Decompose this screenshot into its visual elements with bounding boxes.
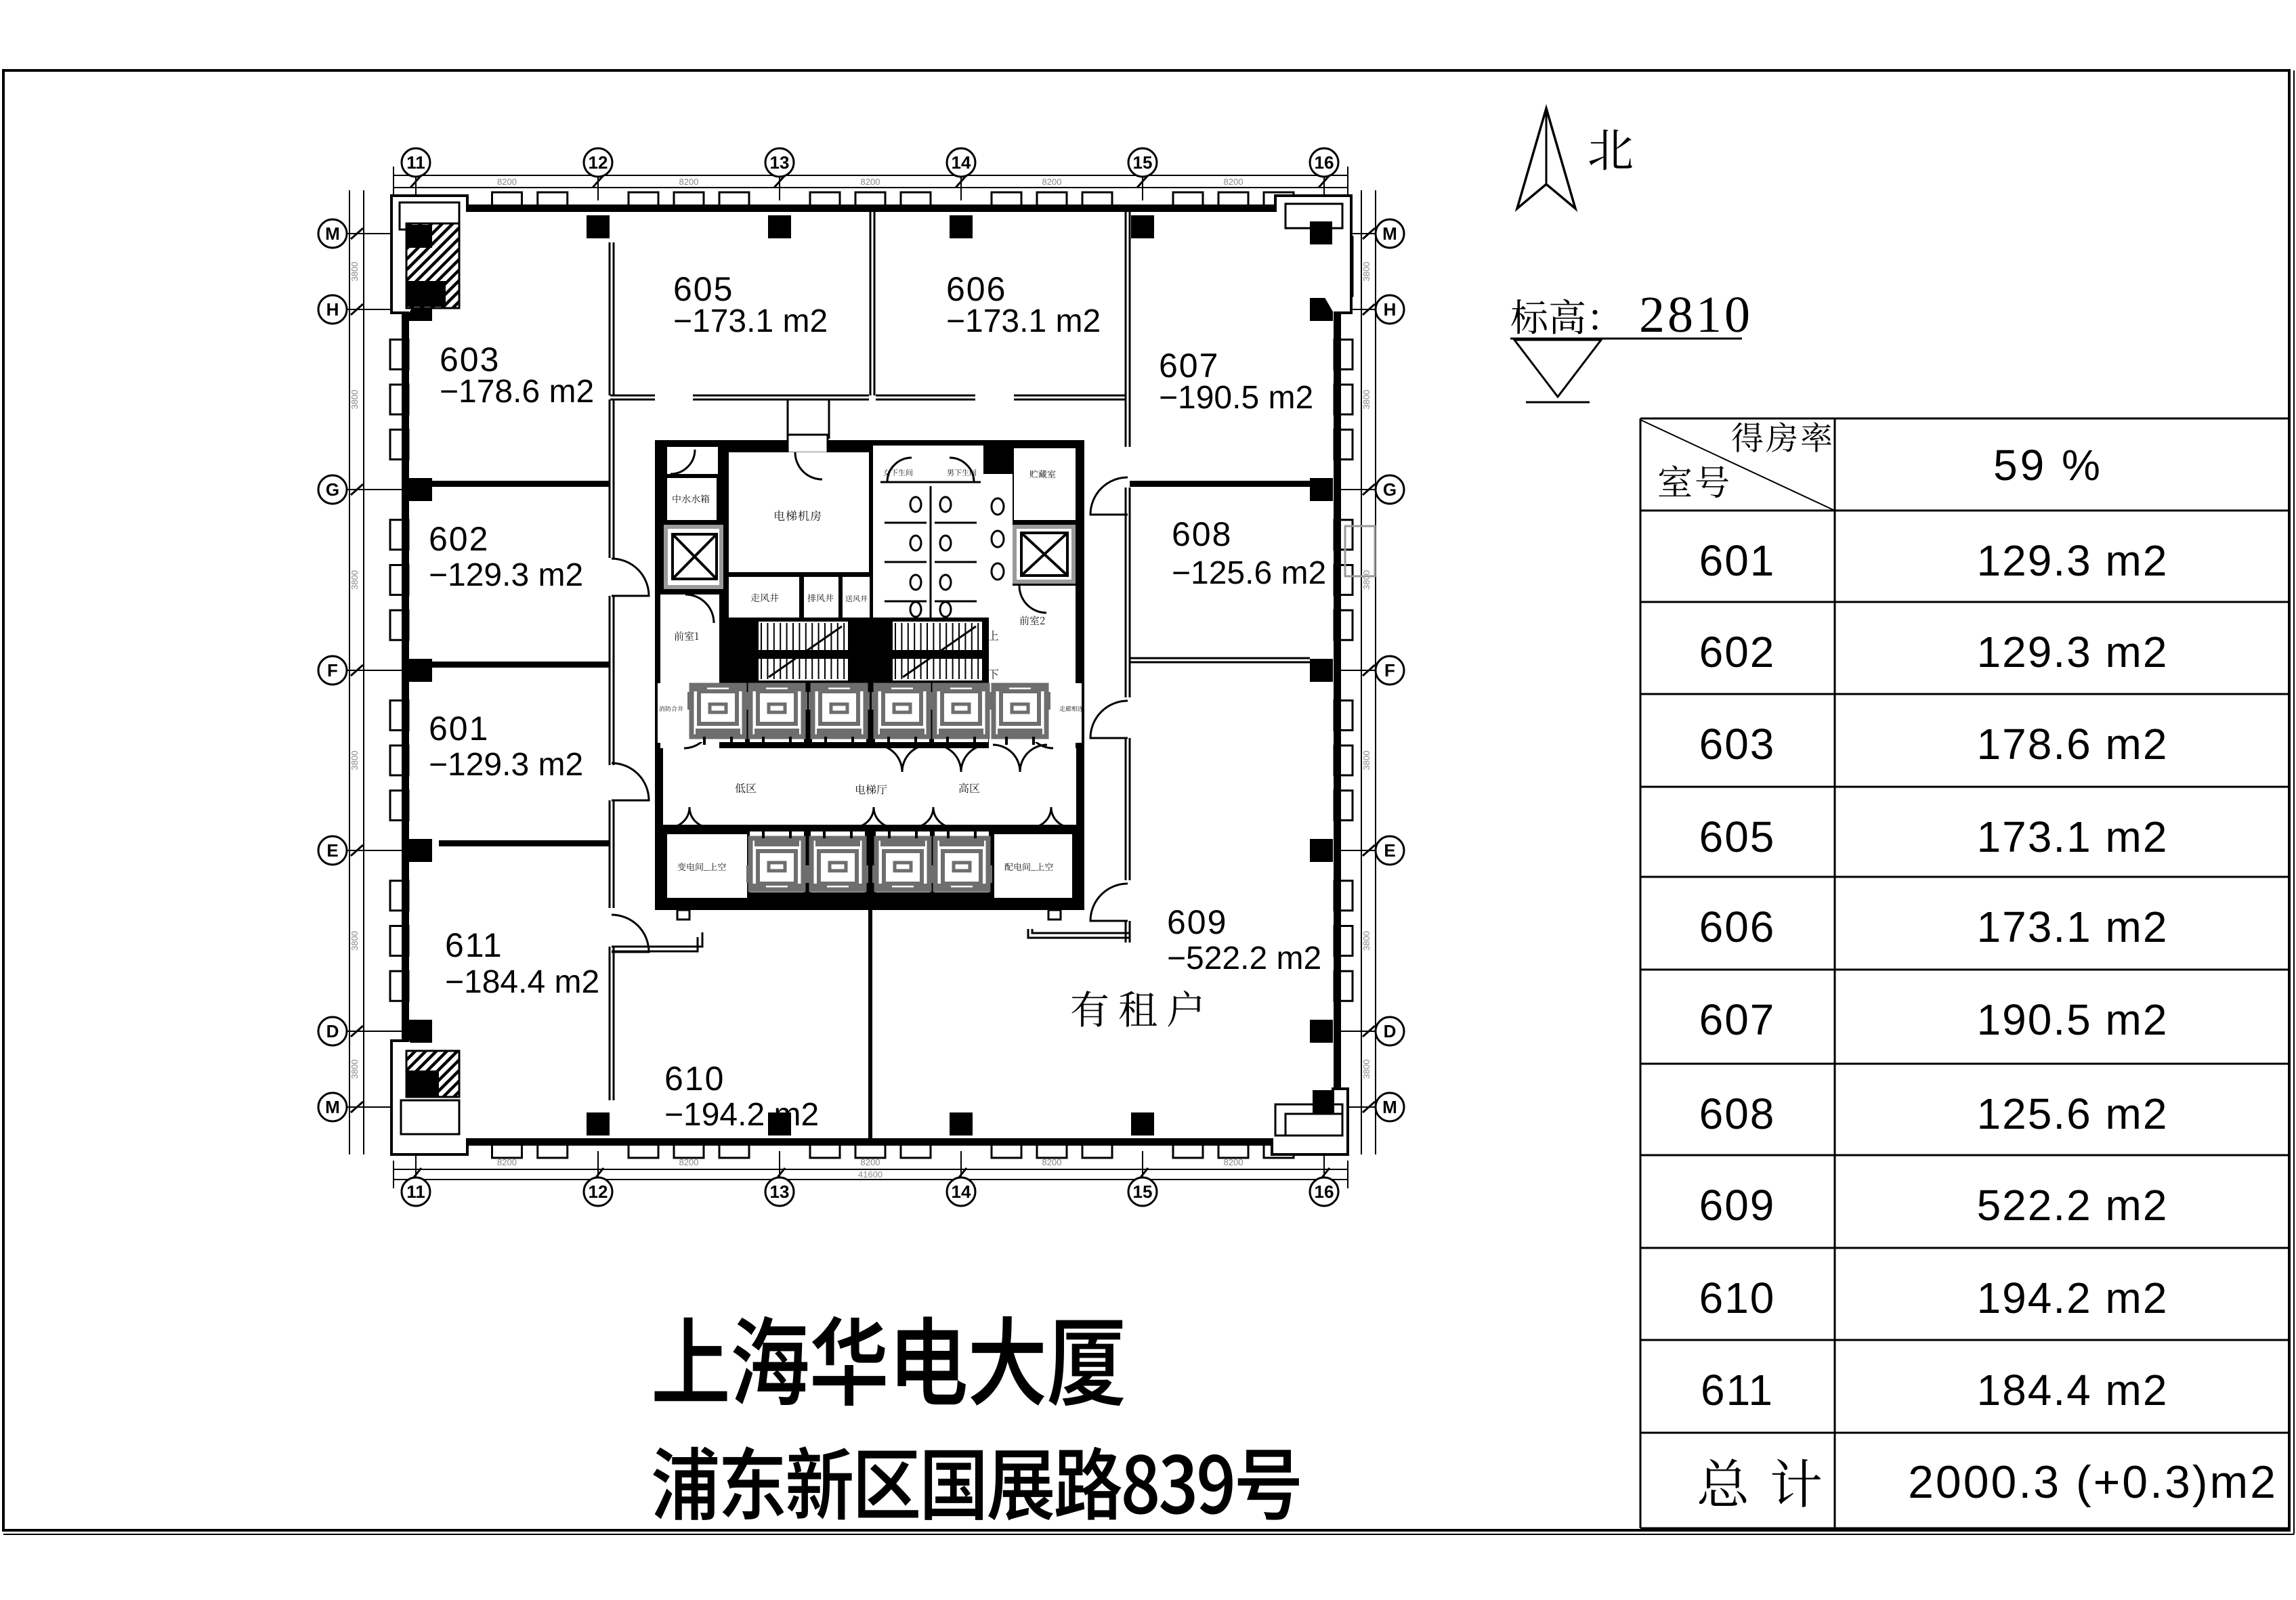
svg-text:129.3 m2: 129.3 m2	[1977, 536, 2169, 585]
svg-text:522.2 m2: 522.2 m2	[1977, 1181, 2169, 1230]
svg-text:184.4 m2: 184.4 m2	[1977, 1366, 2169, 1414]
svg-text:3800: 3800	[1361, 1060, 1372, 1079]
svg-text:−190.5 m2: −190.5 m2	[1159, 380, 1313, 416]
svg-text:602: 602	[429, 520, 489, 558]
svg-text:D: D	[326, 1021, 339, 1041]
svg-text:605: 605	[1699, 813, 1776, 861]
svg-text:3800: 3800	[1361, 390, 1372, 410]
svg-text:−125.6 m2: −125.6 m2	[1172, 555, 1326, 591]
svg-text:12: 12	[589, 152, 608, 173]
svg-text:11: 11	[406, 152, 425, 173]
svg-text:−129.3 m2: −129.3 m2	[429, 747, 583, 783]
svg-text:194.2 m2: 194.2 m2	[1977, 1274, 2169, 1322]
svg-text:14: 14	[952, 152, 971, 173]
svg-text:611: 611	[1701, 1366, 1774, 1414]
svg-text:15: 15	[1133, 1182, 1153, 1202]
svg-text:611: 611	[445, 926, 503, 964]
svg-text:609: 609	[1699, 1181, 1776, 1230]
svg-text:129.3 m2: 129.3 m2	[1977, 628, 2169, 676]
svg-text:41600: 41600	[858, 1169, 883, 1180]
svg-text:13: 13	[770, 1182, 790, 1202]
svg-text:8200: 8200	[679, 177, 699, 187]
svg-text:−184.4 m2: −184.4 m2	[445, 964, 599, 1000]
svg-text:12: 12	[589, 1182, 608, 1202]
svg-text:M: M	[1382, 223, 1397, 244]
svg-text:3800: 3800	[349, 390, 360, 410]
svg-text:3800: 3800	[1361, 931, 1372, 951]
svg-text:608: 608	[1172, 515, 1232, 553]
svg-text:M: M	[325, 1097, 340, 1117]
svg-text:603: 603	[440, 341, 500, 379]
svg-text:606: 606	[1699, 903, 1776, 951]
svg-text:F: F	[1384, 660, 1395, 680]
svg-text:608: 608	[1699, 1089, 1776, 1138]
svg-text:F: F	[327, 660, 338, 680]
svg-text:16: 16	[1315, 152, 1334, 173]
svg-text:3800: 3800	[349, 570, 360, 590]
svg-text:173.1 m2: 173.1 m2	[1977, 903, 2169, 951]
svg-text:16: 16	[1315, 1182, 1334, 1202]
svg-text:G: G	[1383, 479, 1397, 500]
svg-text:15: 15	[1133, 152, 1153, 173]
svg-text:M: M	[325, 223, 340, 244]
svg-text:−173.1 m2: −173.1 m2	[673, 303, 828, 339]
svg-text:602: 602	[1699, 628, 1776, 676]
svg-text:3800: 3800	[349, 262, 360, 282]
svg-text:59 %: 59 %	[1993, 441, 2103, 490]
svg-text:3800: 3800	[1361, 262, 1372, 282]
svg-text:605: 605	[673, 270, 734, 308]
svg-text:607: 607	[1699, 995, 1776, 1044]
svg-text:8200: 8200	[1042, 177, 1062, 187]
svg-text:3800: 3800	[1361, 570, 1372, 590]
svg-text:178.6 m2: 178.6 m2	[1977, 720, 2169, 769]
svg-text:−129.3 m2: −129.3 m2	[429, 557, 583, 593]
svg-text:−522.2 m2: −522.2 m2	[1167, 940, 1321, 976]
svg-text:E: E	[1384, 840, 1395, 861]
svg-text:603: 603	[1699, 720, 1776, 769]
svg-text:D: D	[1384, 1021, 1397, 1041]
svg-text:2810: 2810	[1639, 286, 1753, 343]
svg-text:601: 601	[1699, 536, 1776, 585]
svg-text:610: 610	[1699, 1274, 1776, 1322]
svg-text:H: H	[326, 299, 339, 320]
svg-text:3800: 3800	[349, 751, 360, 771]
svg-text:H: H	[1384, 299, 1397, 320]
svg-text:2000.3 (+0.3)m2: 2000.3 (+0.3)m2	[1908, 1456, 2278, 1508]
svg-text:M: M	[1382, 1097, 1397, 1117]
svg-text:3800: 3800	[349, 1060, 360, 1079]
svg-text:11: 11	[406, 1182, 425, 1202]
svg-text:8200: 8200	[861, 177, 880, 187]
svg-text:8200: 8200	[497, 177, 517, 187]
svg-text:14: 14	[952, 1182, 971, 1202]
svg-text:8200: 8200	[1224, 177, 1243, 187]
svg-text:125.6 m2: 125.6 m2	[1977, 1089, 2169, 1138]
svg-text:606: 606	[946, 270, 1006, 308]
svg-text:3800: 3800	[1361, 751, 1372, 771]
svg-text:−194.2 m2: −194.2 m2	[664, 1097, 819, 1133]
svg-text:E: E	[326, 840, 338, 861]
svg-text:601: 601	[429, 710, 489, 748]
svg-text:190.5 m2: 190.5 m2	[1977, 995, 2169, 1044]
svg-text:13: 13	[770, 152, 790, 173]
svg-text:3800: 3800	[349, 931, 360, 951]
svg-text:607: 607	[1159, 347, 1219, 385]
svg-text:610: 610	[664, 1060, 725, 1098]
svg-text:173.1 m2: 173.1 m2	[1977, 813, 2169, 861]
svg-text:−173.1 m2: −173.1 m2	[946, 303, 1101, 339]
svg-text:609: 609	[1167, 903, 1227, 941]
svg-text:−178.6 m2: −178.6 m2	[440, 374, 594, 410]
svg-text:G: G	[326, 479, 339, 500]
